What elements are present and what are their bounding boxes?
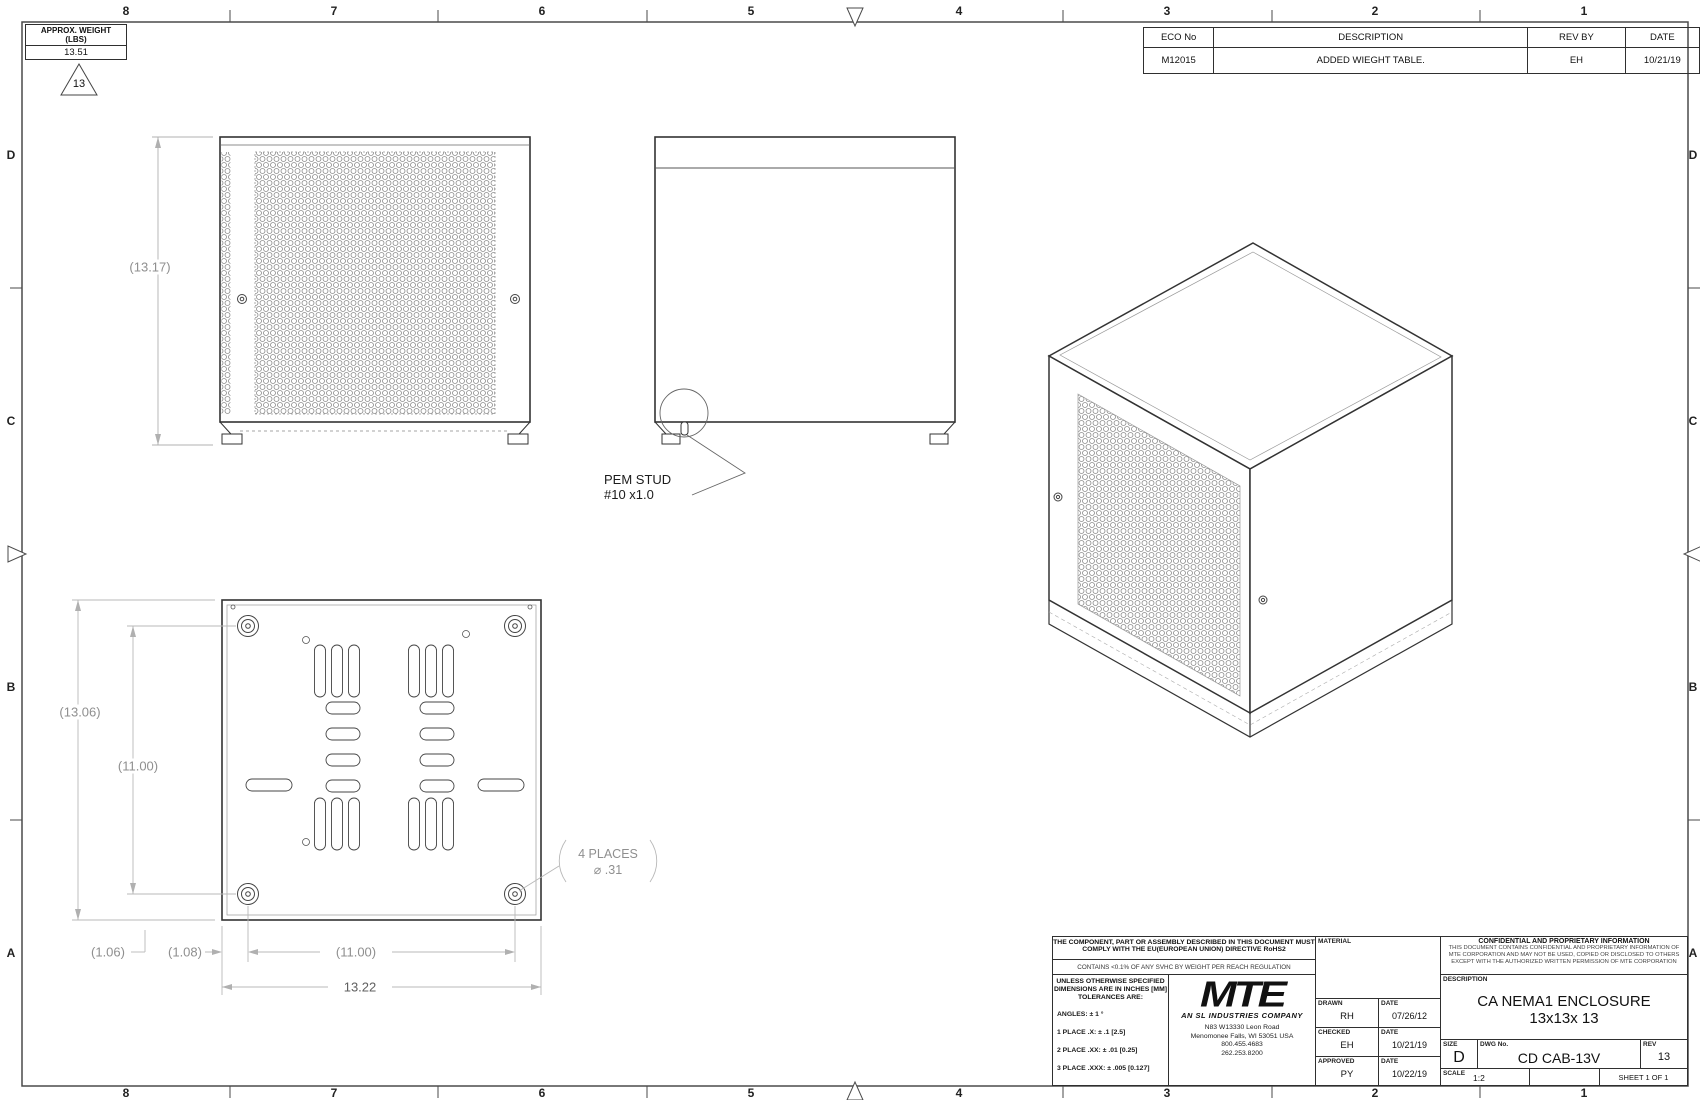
confidential-box: CONFIDENTIAL AND PROPRIETARY INFORMATION… bbox=[1440, 936, 1688, 975]
mte-logo: MTE bbox=[1169, 979, 1315, 1012]
company-address-2: Menomonee Falls, WI 53051 USA bbox=[1169, 1033, 1315, 1042]
company-phone-1: 800.455.4683 bbox=[1169, 1041, 1315, 1050]
zone-left-b: B bbox=[7, 680, 16, 694]
front-view bbox=[152, 137, 530, 445]
eco-row: M12015 ADDED WIEGHT TABLE. EH 10/21/19 bbox=[1144, 48, 1700, 74]
sheet-box: SHEET 1 OF 1 bbox=[1599, 1068, 1688, 1086]
zone-bottom-8: 8 bbox=[123, 1086, 130, 1100]
eco-desc: ADDED WIEGHT TABLE. bbox=[1214, 48, 1528, 74]
zone-top-3: 3 bbox=[1164, 4, 1171, 18]
weight-table-header: APPROX. WEIGHT (LBS) bbox=[26, 25, 127, 46]
center-mark-right bbox=[1684, 546, 1700, 562]
zone-top-6: 6 bbox=[539, 4, 546, 18]
dim-front-height: (13.17) bbox=[126, 260, 173, 275]
reach-compliance-box: CONTAINS <0.1% OF ANY SVHC BY WEIGHT PER… bbox=[1052, 959, 1316, 975]
dim-bottom-offset-b: (1.08) bbox=[165, 945, 205, 960]
drawn-by: RH bbox=[1316, 1011, 1378, 1022]
size-label: SIZE bbox=[1443, 1041, 1457, 1048]
tolerance-1place: 1 PLACE .X: ± .1 [2.5] bbox=[1057, 1029, 1125, 1036]
dwg-no-value: CD CAB-13V bbox=[1478, 1050, 1640, 1066]
weight-value: 13.51 bbox=[26, 46, 127, 60]
tolerance-heading: UNLESS OTHERWISE SPECIFIED DIMENSIONS AR… bbox=[1053, 975, 1168, 1002]
drawn-label: DRAWN bbox=[1318, 1000, 1343, 1007]
bottom-view bbox=[72, 600, 657, 995]
zone-bottom-3: 3 bbox=[1164, 1086, 1171, 1100]
rev-value: 13 bbox=[1641, 1051, 1687, 1063]
eco-table: ECO No DESCRIPTION REV BY DATE M12015 AD… bbox=[1143, 27, 1700, 74]
front-perforated-panel bbox=[255, 152, 495, 414]
eco-col-date: DATE bbox=[1625, 28, 1699, 48]
side-foot-left bbox=[662, 434, 680, 444]
checked-by: EH bbox=[1316, 1040, 1378, 1051]
pem-callout-line1: PEM STUD bbox=[604, 472, 671, 487]
checked-box: CHECKED EH bbox=[1315, 1027, 1379, 1057]
tolerance-box: UNLESS OTHERWISE SPECIFIED DIMENSIONS AR… bbox=[1052, 974, 1169, 1086]
eco-col-no: ECO No bbox=[1144, 28, 1214, 48]
zone-right-c: C bbox=[1689, 414, 1698, 428]
dim-bottom-overall-height: (13.06) bbox=[56, 705, 103, 720]
front-foot-right bbox=[508, 434, 528, 444]
approved-by: PY bbox=[1316, 1069, 1378, 1080]
drawn-date-box: DATE 07/26/12 bbox=[1378, 998, 1441, 1028]
eco-date: 10/21/19 bbox=[1625, 48, 1699, 74]
size-value: D bbox=[1441, 1049, 1477, 1067]
size-box: SIZE D bbox=[1440, 1039, 1478, 1069]
center-mark-top bbox=[847, 8, 863, 26]
zone-right-a: A bbox=[1689, 946, 1698, 960]
checked-label: CHECKED bbox=[1318, 1029, 1350, 1036]
callout-pem-stud: PEM STUD #10 x1.0 bbox=[604, 472, 671, 502]
zone-bottom-6: 6 bbox=[539, 1086, 546, 1100]
rev-box: REV 13 bbox=[1640, 1039, 1688, 1069]
scale-box: SCALE 1:2 bbox=[1440, 1068, 1530, 1086]
pem-leader-line bbox=[687, 435, 745, 495]
approved-box: APPROVED PY bbox=[1315, 1056, 1379, 1086]
zone-top-5: 5 bbox=[748, 4, 755, 18]
rohs-compliance-box: THE COMPONENT, PART OR ASSEMBLY DESCRIBE… bbox=[1052, 936, 1316, 960]
zone-top-2: 2 bbox=[1372, 4, 1379, 18]
checked-date-box: DATE 10/21/19 bbox=[1378, 1027, 1441, 1057]
drawing-sheet: 8 7 6 5 4 3 2 1 8 7 6 5 4 3 2 1 D C B A … bbox=[0, 0, 1700, 1100]
company-address-1: N83 W13330 Leon Road bbox=[1169, 1024, 1315, 1033]
tolerance-angles: ANGLES: ± 1 ° bbox=[1057, 1011, 1103, 1018]
zone-top-7: 7 bbox=[331, 4, 338, 18]
zone-left-c: C bbox=[7, 414, 16, 428]
rohs-text: THE COMPONENT, PART OR ASSEMBLY DESCRIBE… bbox=[1053, 937, 1315, 953]
drawn-box: DRAWN RH bbox=[1315, 998, 1379, 1028]
approved-date-label: DATE bbox=[1381, 1058, 1398, 1065]
side-view bbox=[655, 137, 955, 495]
description-label: DESCRIPTION bbox=[1443, 976, 1487, 983]
approved-date: 10/22/19 bbox=[1379, 1069, 1440, 1079]
weight-table: APPROX. WEIGHT (LBS) 13.51 bbox=[25, 24, 127, 60]
description-box: DESCRIPTION CA NEMA1 ENCLOSURE 13x13x 13 bbox=[1440, 974, 1688, 1040]
scale-label: SCALE bbox=[1443, 1070, 1465, 1077]
dim-bottom-offset-a: (1.06) bbox=[88, 945, 128, 960]
eco-rev: EH bbox=[1528, 48, 1626, 74]
material-label: MATERIAL bbox=[1318, 938, 1351, 945]
material-box: MATERIAL bbox=[1315, 936, 1441, 999]
confidential-body: THIS DOCUMENT CONTAINS CONFIDENTIAL AND … bbox=[1441, 945, 1687, 965]
checked-date-label: DATE bbox=[1381, 1029, 1398, 1036]
eco-col-desc: DESCRIPTION bbox=[1214, 28, 1528, 48]
confidential-title: CONFIDENTIAL AND PROPRIETARY INFORMATION bbox=[1441, 937, 1687, 945]
zone-left-d: D bbox=[7, 148, 16, 162]
reach-text: CONTAINS <0.1% OF ANY SVHC BY WEIGHT PER… bbox=[1053, 960, 1315, 971]
callout-4-places-dia: ⌀ .31 bbox=[578, 862, 638, 878]
drawn-date-label: DATE bbox=[1381, 1000, 1398, 1007]
zone-bottom-4: 4 bbox=[956, 1086, 963, 1100]
rev-label: REV bbox=[1643, 1041, 1656, 1048]
dim-front-height-lines bbox=[152, 137, 213, 445]
pem-stud bbox=[681, 422, 688, 435]
center-mark-bottom bbox=[847, 1082, 863, 1100]
zone-bottom-5: 5 bbox=[748, 1086, 755, 1100]
side-foot-right bbox=[930, 434, 948, 444]
company-box: MTE AN SL INDUSTRIES COMPANY N83 W13330 … bbox=[1168, 974, 1316, 1086]
dim-bottom-inner-height: (11.00) bbox=[115, 759, 161, 774]
tolerance-3place: 3 PLACE .XXX: ± .005 [0.127] bbox=[1057, 1065, 1150, 1072]
eco-no: M12015 bbox=[1144, 48, 1214, 74]
drawing-description: CA NEMA1 ENCLOSURE 13x13x 13 bbox=[1441, 993, 1687, 1027]
checked-date: 10/21/19 bbox=[1379, 1040, 1440, 1050]
isometric-view bbox=[1049, 243, 1452, 737]
front-foot-left bbox=[222, 434, 242, 444]
zone-left-a: A bbox=[7, 946, 16, 960]
callout-4-places-note: 4 PLACES bbox=[578, 846, 638, 862]
approved-date-box: DATE 10/22/19 bbox=[1378, 1056, 1441, 1086]
company-phone-2: 262.253.8200 bbox=[1169, 1050, 1315, 1059]
scale-spacer-box bbox=[1529, 1068, 1600, 1086]
drawing-lineart bbox=[0, 0, 1700, 1100]
zone-top-8: 8 bbox=[123, 4, 130, 18]
zone-right-d: D bbox=[1689, 148, 1698, 162]
zone-right-b: B bbox=[1689, 680, 1698, 694]
approved-label: APPROVED bbox=[1318, 1058, 1354, 1065]
tolerance-2place: 2 PLACE .XX: ± .01 [0.25] bbox=[1057, 1047, 1137, 1054]
eco-col-rev: REV BY bbox=[1528, 28, 1626, 48]
zone-bottom-1: 1 bbox=[1581, 1086, 1588, 1100]
dwg-no-label: DWG No. bbox=[1480, 1041, 1508, 1048]
callout-4-places: 4 PLACES ⌀ .31 bbox=[578, 846, 638, 878]
zone-top-1: 1 bbox=[1581, 4, 1588, 18]
dim-bottom-overall-width: 13.22 bbox=[341, 980, 380, 995]
scale-value: 1:2 bbox=[1473, 1073, 1485, 1083]
sheet-value: SHEET 1 OF 1 bbox=[1600, 1073, 1687, 1082]
revision-flag-number: 13 bbox=[73, 78, 85, 90]
pem-callout-line2: #10 x1.0 bbox=[604, 487, 671, 502]
zone-bottom-7: 7 bbox=[331, 1086, 338, 1100]
center-mark-left bbox=[8, 546, 26, 562]
zone-bottom-2: 2 bbox=[1372, 1086, 1379, 1100]
drawn-date: 07/26/12 bbox=[1379, 1011, 1440, 1021]
dim-bottom-inner-width: (11.00) bbox=[333, 945, 379, 960]
dwg-no-box: DWG No. CD CAB-13V bbox=[1477, 1039, 1641, 1069]
zone-top-4: 4 bbox=[956, 4, 963, 18]
